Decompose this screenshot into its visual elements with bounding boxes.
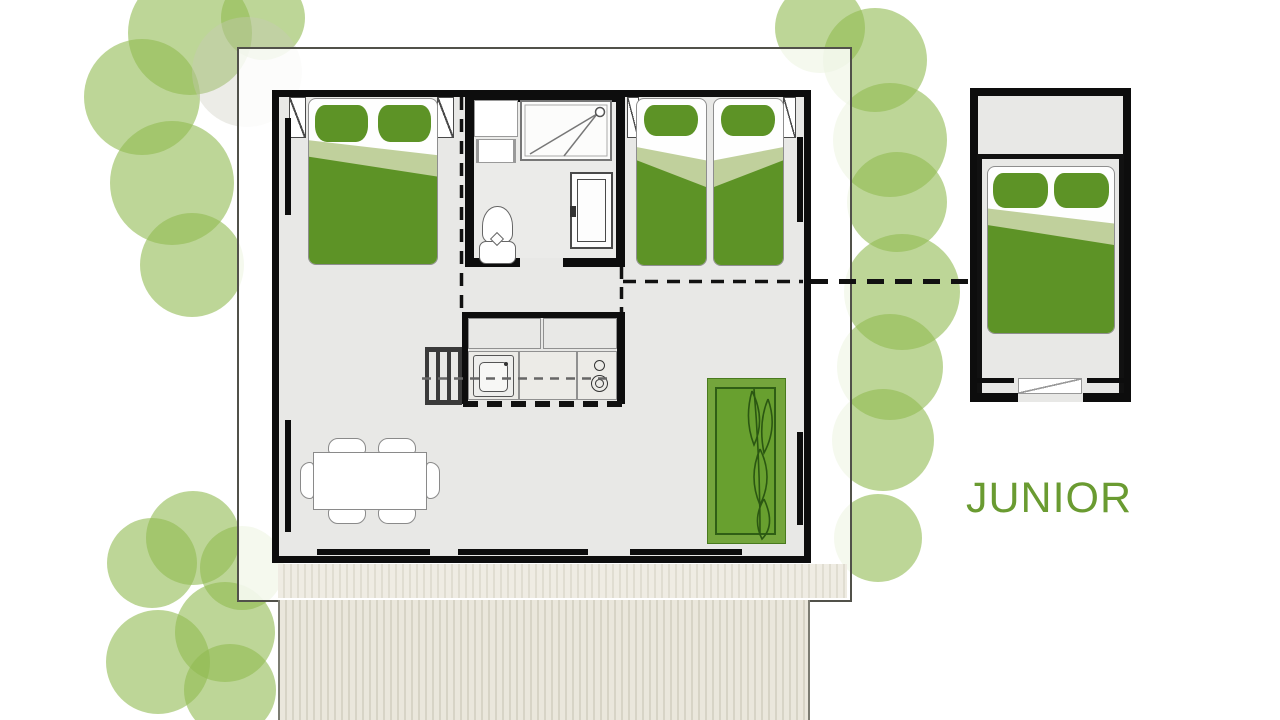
partition-lines bbox=[0, 0, 1280, 720]
unit-label: JUNIOR bbox=[966, 474, 1132, 523]
floor-plan-canvas: JUNIOR bbox=[0, 0, 1280, 720]
